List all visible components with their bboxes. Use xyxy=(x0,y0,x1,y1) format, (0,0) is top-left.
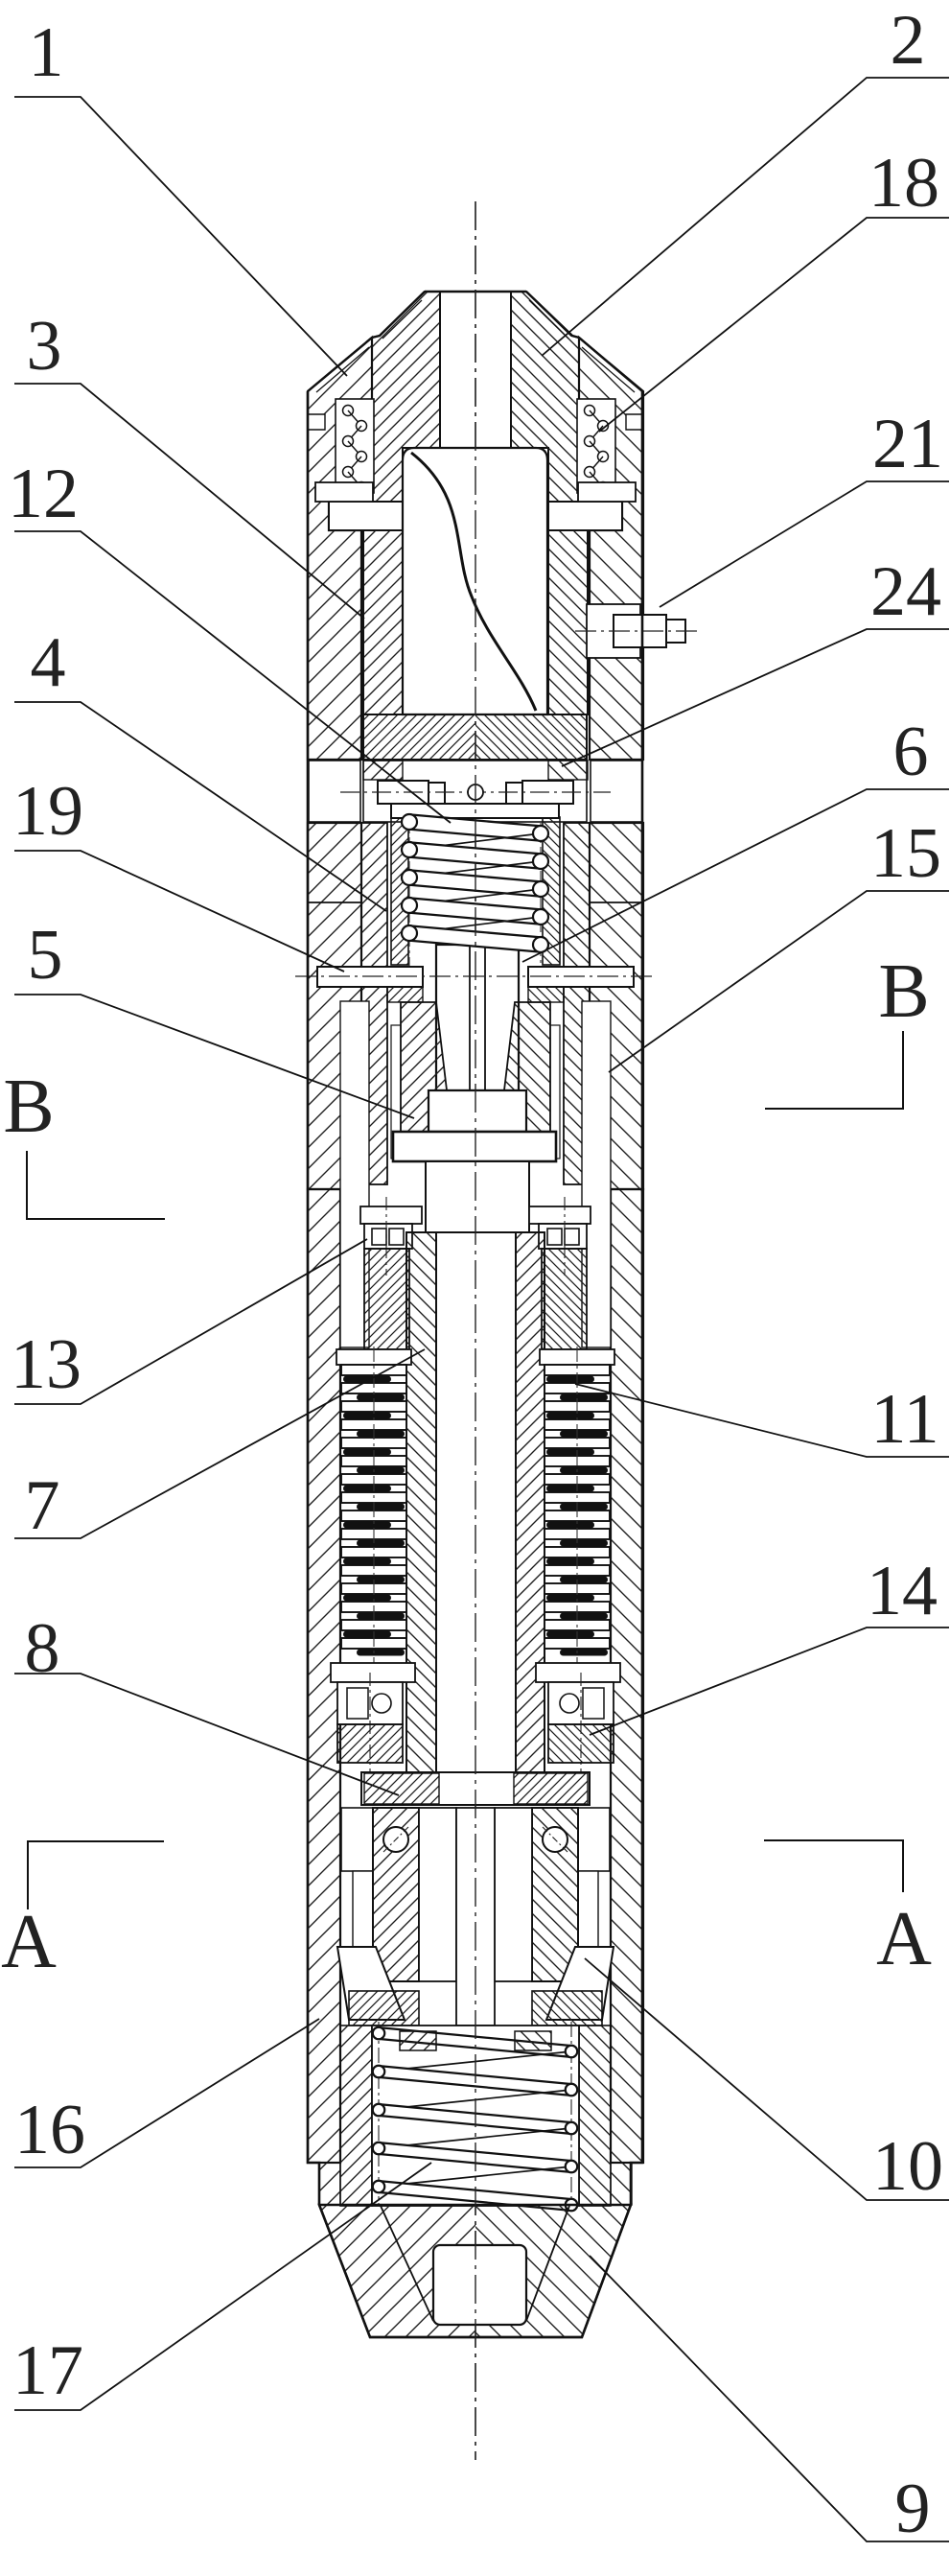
svg-text:4: 4 xyxy=(31,623,66,702)
svg-text:A: A xyxy=(1,1900,57,1984)
svg-text:18: 18 xyxy=(869,144,939,222)
svg-text:9: 9 xyxy=(895,2470,931,2548)
svg-text:5: 5 xyxy=(28,916,63,995)
svg-text:24: 24 xyxy=(870,552,941,631)
svg-text:6: 6 xyxy=(893,713,929,791)
svg-text:15: 15 xyxy=(870,814,941,893)
svg-text:B: B xyxy=(3,1065,54,1149)
svg-text:19: 19 xyxy=(12,772,83,851)
svg-text:3: 3 xyxy=(27,307,62,386)
svg-text:2: 2 xyxy=(891,1,926,80)
svg-text:11: 11 xyxy=(870,1380,938,1459)
svg-text:8: 8 xyxy=(25,1609,60,1688)
svg-text:7: 7 xyxy=(25,1466,60,1545)
svg-text:1: 1 xyxy=(29,13,64,92)
svg-text:10: 10 xyxy=(872,2127,943,2206)
svg-text:12: 12 xyxy=(8,455,79,533)
svg-text:17: 17 xyxy=(12,2331,83,2410)
svg-text:14: 14 xyxy=(867,1552,938,1630)
svg-text:21: 21 xyxy=(872,405,943,483)
svg-text:13: 13 xyxy=(11,1325,81,1404)
svg-text:B: B xyxy=(878,949,929,1034)
svg-text:A: A xyxy=(876,1897,932,1981)
svg-text:16: 16 xyxy=(14,2091,85,2169)
